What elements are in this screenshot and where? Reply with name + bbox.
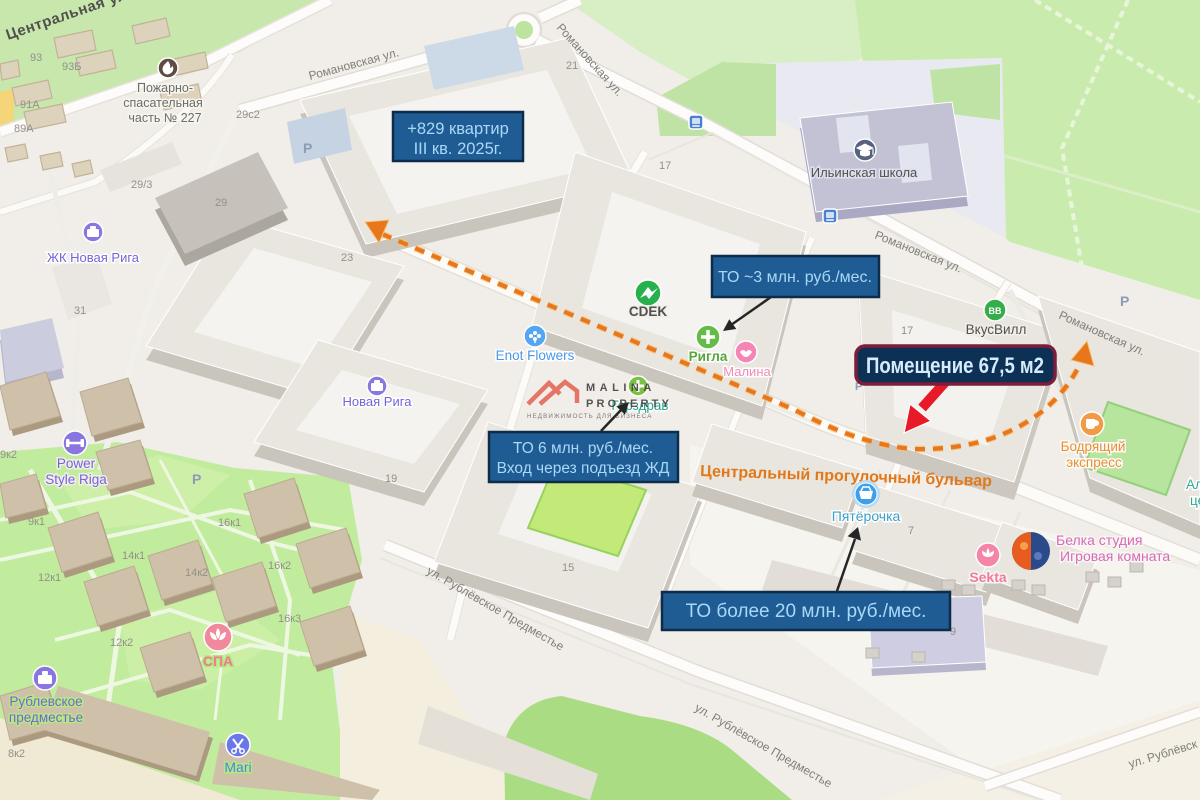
- svg-text:спасательная: спасательная: [123, 96, 202, 110]
- svg-text:часть № 227: часть № 227: [128, 111, 201, 125]
- svg-text:29/3: 29/3: [131, 179, 152, 191]
- svg-text:23: 23: [341, 252, 353, 264]
- svg-text:Бодрящий: Бодрящий: [1061, 439, 1126, 454]
- svg-text:Enot Flowers: Enot Flowers: [496, 348, 575, 363]
- svg-text:14к1: 14к1: [122, 550, 145, 562]
- svg-text:Рублевское: Рублевское: [9, 694, 82, 709]
- svg-text:29с2: 29с2: [236, 109, 260, 121]
- svg-text:9к1: 9к1: [28, 516, 45, 528]
- svg-text:ТО более 20 млн. руб./мес.: ТО более 20 млн. руб./мес.: [686, 601, 927, 622]
- svg-text:Power: Power: [57, 456, 96, 471]
- svg-text:93Б: 93Б: [62, 61, 81, 73]
- svg-text:Малина: Малина: [723, 364, 771, 379]
- svg-text:ТО ~3 млн. руб./мес.: ТО ~3 млн. руб./мес.: [718, 269, 872, 286]
- svg-text:Пятёрочка: Пятёрочка: [832, 508, 901, 524]
- svg-text:MALINA: MALINA: [586, 382, 656, 394]
- svg-text:9к2: 9к2: [0, 449, 17, 461]
- svg-text:12к1: 12к1: [38, 572, 61, 584]
- svg-text:PROPERTY: PROPERTY: [586, 398, 672, 410]
- svg-text:91А: 91А: [20, 99, 40, 111]
- svg-text:31: 31: [74, 305, 86, 317]
- svg-text:Mari: Mari: [224, 759, 251, 775]
- svg-text:16к1: 16к1: [218, 517, 241, 529]
- svg-text:ЖК Новая Рига: ЖК Новая Рига: [47, 250, 140, 265]
- svg-text:CDEK: CDEK: [629, 304, 668, 319]
- svg-text:16к3: 16к3: [278, 613, 301, 625]
- svg-text:15: 15: [562, 562, 574, 574]
- svg-text:III кв. 2025г.: III кв. 2025г.: [414, 140, 503, 158]
- svg-text:Р: Р: [1120, 293, 1129, 309]
- svg-text:29: 29: [215, 197, 227, 209]
- svg-text:12к2: 12к2: [110, 637, 133, 649]
- svg-text:Пожарно-: Пожарно-: [137, 81, 193, 95]
- svg-text:Ал: Ал: [1186, 477, 1200, 492]
- svg-text:93: 93: [30, 52, 42, 64]
- svg-text:экспресс: экспресс: [1066, 455, 1122, 470]
- svg-text:Р: Р: [192, 471, 201, 487]
- svg-text:17: 17: [659, 160, 671, 172]
- svg-text:21: 21: [566, 60, 578, 72]
- svg-text:14к2: 14к2: [185, 567, 208, 579]
- svg-text:НЕДВИЖИМОСТЬ ДЛЯ БИЗНЕСА: НЕДВИЖИМОСТЬ ДЛЯ БИЗНЕСА: [527, 413, 652, 420]
- svg-text:Игровая комната: Игровая комната: [1060, 548, 1170, 564]
- svg-text:це: це: [1190, 493, 1200, 508]
- svg-text:Помещение 67,5 м2: Помещение 67,5 м2: [866, 353, 1044, 378]
- svg-text:Белка студия: Белка студия: [1056, 532, 1142, 548]
- svg-text:ТО 6 млн. руб./мес.: ТО 6 млн. руб./мес.: [513, 440, 653, 457]
- svg-text:Sekta: Sekta: [969, 569, 1007, 585]
- svg-text:ВВ: ВВ: [989, 306, 1002, 316]
- svg-text:ВкусВилл: ВкусВилл: [966, 322, 1027, 337]
- svg-text:19: 19: [385, 473, 397, 485]
- svg-text:СПА: СПА: [203, 653, 233, 669]
- svg-text:Ильинская школа: Ильинская школа: [811, 165, 918, 180]
- svg-text:Style Riga: Style Riga: [45, 472, 107, 487]
- svg-text:89А: 89А: [14, 123, 34, 135]
- svg-text:16к2: 16к2: [268, 560, 291, 572]
- svg-text:Новая Рига: Новая Рига: [343, 394, 413, 409]
- svg-text:предместье: предместье: [9, 710, 83, 725]
- svg-text:17: 17: [901, 325, 913, 337]
- svg-text:+829 квартир: +829 квартир: [407, 120, 509, 138]
- svg-text:Р: Р: [303, 140, 312, 156]
- svg-text:Ригла: Ригла: [689, 349, 728, 364]
- svg-text:Вход через подъезд ЖД: Вход через подъезд ЖД: [497, 460, 670, 477]
- svg-text:8к2: 8к2: [8, 748, 25, 760]
- svg-text:7: 7: [908, 525, 914, 537]
